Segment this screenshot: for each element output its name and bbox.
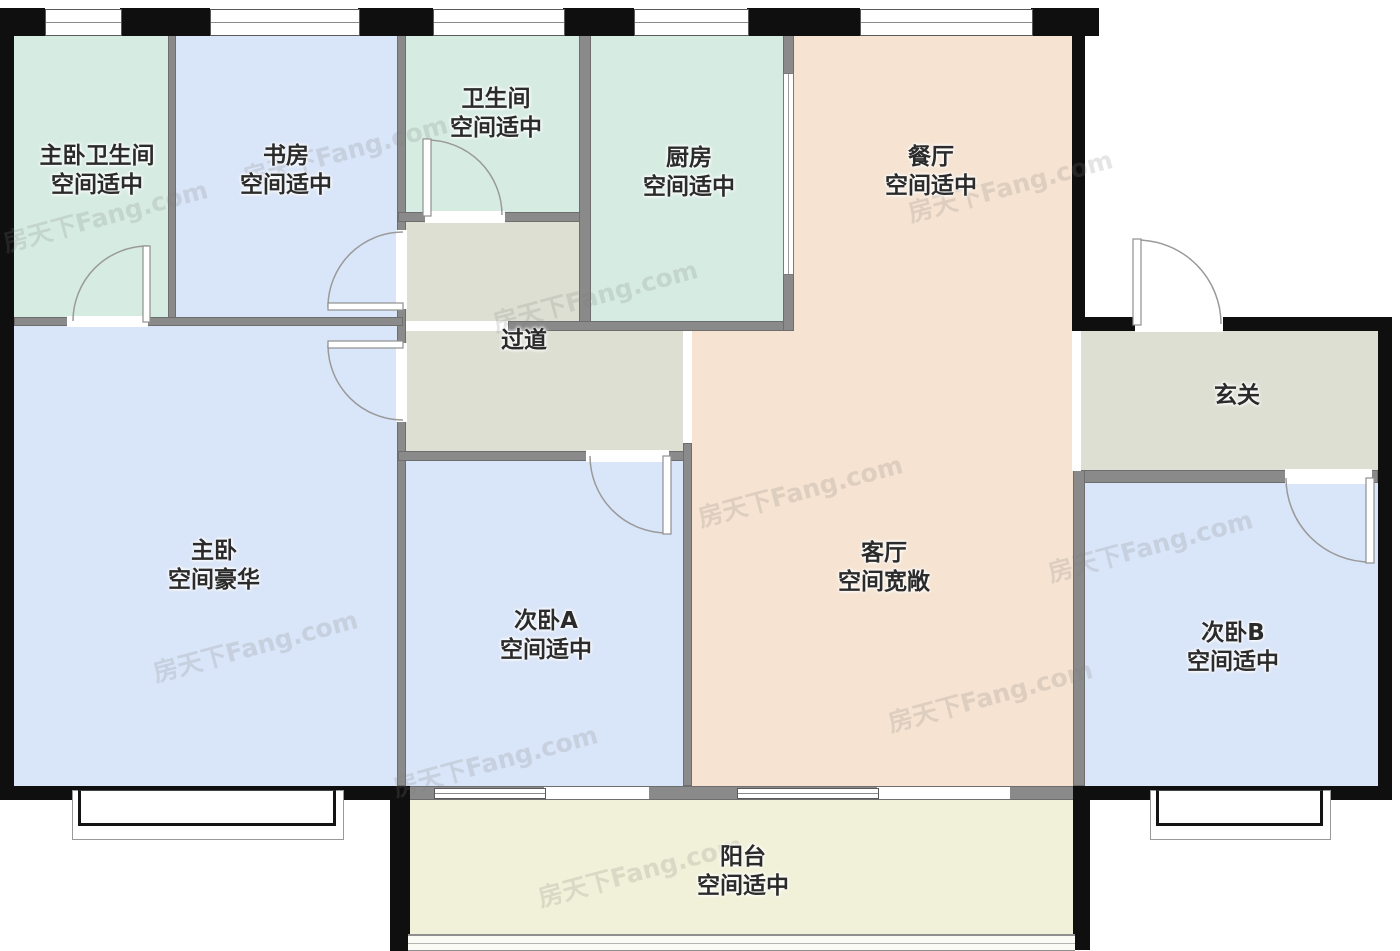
wall-left [0, 8, 14, 800]
window-kitchen [634, 9, 749, 36]
room-desc: 空间适中 [240, 172, 332, 198]
opening-bedrooma-door [586, 450, 669, 462]
room-name: 卫生间 [462, 86, 531, 112]
room-name: 厨房 [666, 145, 712, 171]
wall-masterbath-study [168, 35, 176, 322]
room-desc: 空间适中 [885, 173, 977, 199]
wall-kitchen-bottom [508, 321, 785, 331]
wall-top-seg6 [1031, 8, 1099, 36]
wall-top-seg3 [358, 8, 433, 36]
wall-living-bedroomb [1073, 470, 1085, 786]
label-bedroom-b: 次卧B 空间适中 [1187, 619, 1279, 677]
room-hallway-upper [406, 222, 579, 321]
room-name: 次卧B [1201, 620, 1265, 646]
entry-door-arc [1137, 240, 1221, 324]
window-living-balcony [737, 788, 879, 799]
label-master-bedroom: 主卧 空间豪华 [168, 537, 260, 595]
wall-bathroom-kitchen [579, 35, 591, 331]
room-desc: 空间适中 [1187, 649, 1279, 675]
room-name: 餐厅 [908, 144, 954, 170]
room-desc: 空间适中 [500, 637, 592, 663]
room-name: 过道 [501, 328, 547, 354]
label-dining: 餐厅 空间适中 [885, 143, 977, 201]
floorplan: 房天下Fang.com 房天下Fang.com 房天下Fang.com 房天下F… [0, 0, 1400, 951]
label-foyer: 玄关 [1214, 382, 1260, 411]
opening-masterbath-door [67, 316, 148, 327]
room-name: 主卧卫生间 [40, 143, 155, 169]
label-master-bathroom: 主卧卫生间 空间适中 [40, 142, 155, 200]
window-masterbath [45, 9, 122, 36]
opening-bedrooma-balcony [544, 787, 649, 799]
opening-master-door [396, 343, 407, 422]
label-living: 客厅 空间宽敞 [838, 539, 930, 597]
opening-bedroomb-door [1285, 469, 1372, 484]
room-desc: 空间适中 [697, 873, 789, 899]
room-desc: 空间适中 [51, 172, 143, 198]
label-bathroom: 卫生间 空间适中 [450, 85, 542, 143]
bay-window-bedroomb [1156, 790, 1323, 826]
window-kitchen-dining [783, 73, 794, 275]
room-name: 客厅 [861, 540, 907, 566]
opening-bathroom-door [425, 211, 505, 223]
window-dining [860, 9, 1033, 36]
wall-balcony-right [1073, 786, 1090, 950]
label-study: 书房 空间适中 [240, 142, 332, 200]
room-desc: 空间豪华 [168, 567, 260, 593]
label-kitchen: 厨房 空间适中 [643, 144, 735, 202]
window-bedrooma-balcony [434, 788, 546, 799]
window-study [210, 9, 360, 36]
opening-study-door [396, 230, 407, 309]
label-balcony: 阳台 空间适中 [697, 843, 789, 901]
room-name: 主卧 [191, 538, 237, 564]
entry-door-leaf [1133, 239, 1141, 325]
balcony-railing [408, 934, 1075, 951]
bay-window-master [78, 790, 336, 826]
wall-top-seg2 [120, 8, 210, 36]
room-desc: 空间适中 [643, 174, 735, 200]
room-desc: 空间宽敞 [838, 569, 930, 595]
label-bedroom-a: 次卧A 空间适中 [500, 607, 592, 665]
wall-right [1378, 317, 1392, 800]
wall-bedrooma-living [683, 443, 692, 786]
label-hallway: 过道 [501, 327, 547, 356]
opening-hall-living [683, 331, 692, 443]
opening-foyer-living [1072, 331, 1081, 471]
window-bathroom [433, 9, 565, 36]
opening-living-balcony [877, 787, 1010, 799]
room-desc: 空间适中 [450, 115, 542, 141]
room-name: 阳台 [720, 844, 766, 870]
room-name: 书房 [263, 143, 309, 169]
opening-entry-door [1135, 316, 1223, 332]
wall-entry-seg1 [1085, 317, 1135, 331]
room-name: 次卧A [514, 608, 578, 634]
wall-entry-seg2 [1223, 317, 1392, 331]
wall-balcony-left [390, 786, 410, 951]
room-name: 玄关 [1214, 383, 1260, 409]
wall-top-seg5 [747, 8, 860, 36]
wall-dining-right [1072, 8, 1085, 331]
wall-top-seg4 [563, 8, 634, 36]
